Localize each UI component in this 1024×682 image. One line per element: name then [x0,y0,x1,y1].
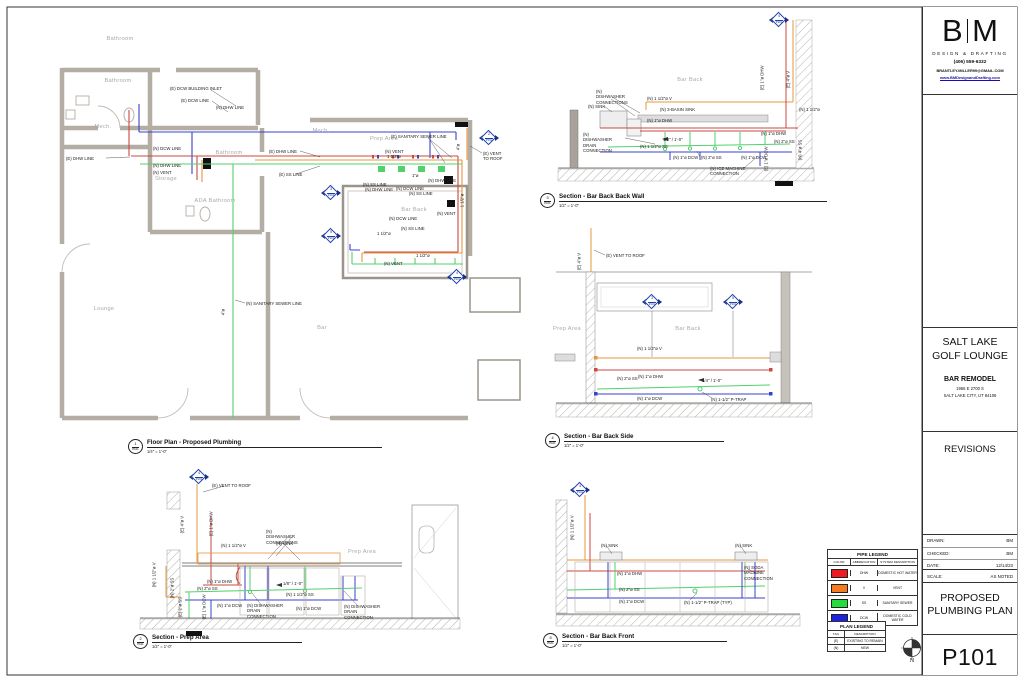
section-prep-area [140,484,460,636]
plan-legend-row: (E)EXISTING TO REMAIN [828,637,885,644]
pipe-legend-row: VVENT [828,580,917,595]
info-rows: DRAWN: BM CHECKED: BM DATE: 12/14/23 [923,535,1017,570]
plan-legend-header-desc: DESCRIPTION [844,631,885,637]
revisions-block: REVISIONS [923,432,1017,535]
logo-letter-b: B [942,13,963,49]
pipe-legend-title: PIPE LEGEND [828,550,917,559]
plan-legend-title: PLAN LEGEND [828,622,885,631]
door-swings [62,106,330,418]
pipe-color-swatch [831,569,848,578]
pipe-legend-header-desc: SYSTEM DESCRIPTION [877,559,917,565]
pipe-legend-row: SSSANITARY SEWER [828,595,917,610]
firm-block: B M DESIGN & DRAFTING (406) 559-6332 BRA… [923,7,1017,95]
pipe-legend: PIPE LEGEND COLOR ABBREVIATION SYSTEM DE… [827,549,918,626]
north-arrow-icon [901,637,923,660]
logo-divider [967,19,969,43]
sheet-title-block: PROPOSED PLUMBING PLAN [923,583,1017,635]
project-address: 1956 E 2700 S SALT LAKE CITY, UT 84106 [923,386,1017,399]
sheet-title: PROPOSED PLUMBING PLAN [923,592,1017,618]
logo-letter-m: M [972,13,998,49]
firm-email: BRANTLEY.MILLER99@GMAIL.COM [923,68,1017,73]
pipe-legend-header-color: COLOR [828,559,850,565]
section-bar-back-back-wall [558,20,814,186]
firm-logo: B M [923,13,1017,49]
title-block-spacer [923,95,1017,328]
checked-row: CHECKED: BM [923,548,1017,561]
project-name: SALT LAKE GOLF LOUNGE [923,336,1017,363]
drawn-row: DRAWN: BM [923,535,1017,548]
scale-row: SCALE: AS NOTED [923,570,1017,583]
plan-legend: PLAN LEGEND TAG DESCRIPTION (E)EXISTING … [827,621,886,652]
sheet-number: P101 [923,644,1017,671]
section-bar-back-side [555,228,812,417]
firm-phone: (406) 559-6332 [923,60,1017,65]
pipe-legend-row: DHWDOMESTIC HOT WATER [828,565,917,580]
date-row: DATE: 12/14/23 [923,560,1017,570]
firm-website-link: www.BMDesignandDrafting.com [923,75,1017,80]
drawing-sheet: BathroomBathroomMech.StorageLoungeMech.P… [0,0,1024,682]
pipe-legend-header-abbr: ABBREVIATION [850,559,877,565]
project-type: BAR REMODEL [923,376,1017,383]
pipe-color-swatch [831,584,848,593]
plan-legend-header-tag: TAG [828,631,844,637]
revisions-label: REVISIONS [923,444,1017,455]
floorplan-walls [62,68,470,418]
title-block: B M DESIGN & DRAFTING (406) 559-6332 BRA… [922,7,1017,675]
firm-name: DESIGN & DRAFTING [923,51,1017,56]
project-block: SALT LAKE GOLF LOUNGE BAR REMODEL 1956 E… [923,328,1017,432]
north-label: N [905,658,919,664]
plumbing-fixtures [66,96,210,221]
pipe-color-swatch [831,599,848,608]
plan-legend-row: (N)NEW [828,644,885,651]
floorplan-pipes [129,104,467,418]
section-bar-back-front [556,495,800,626]
sheet-number-block: P101 [923,635,1017,682]
